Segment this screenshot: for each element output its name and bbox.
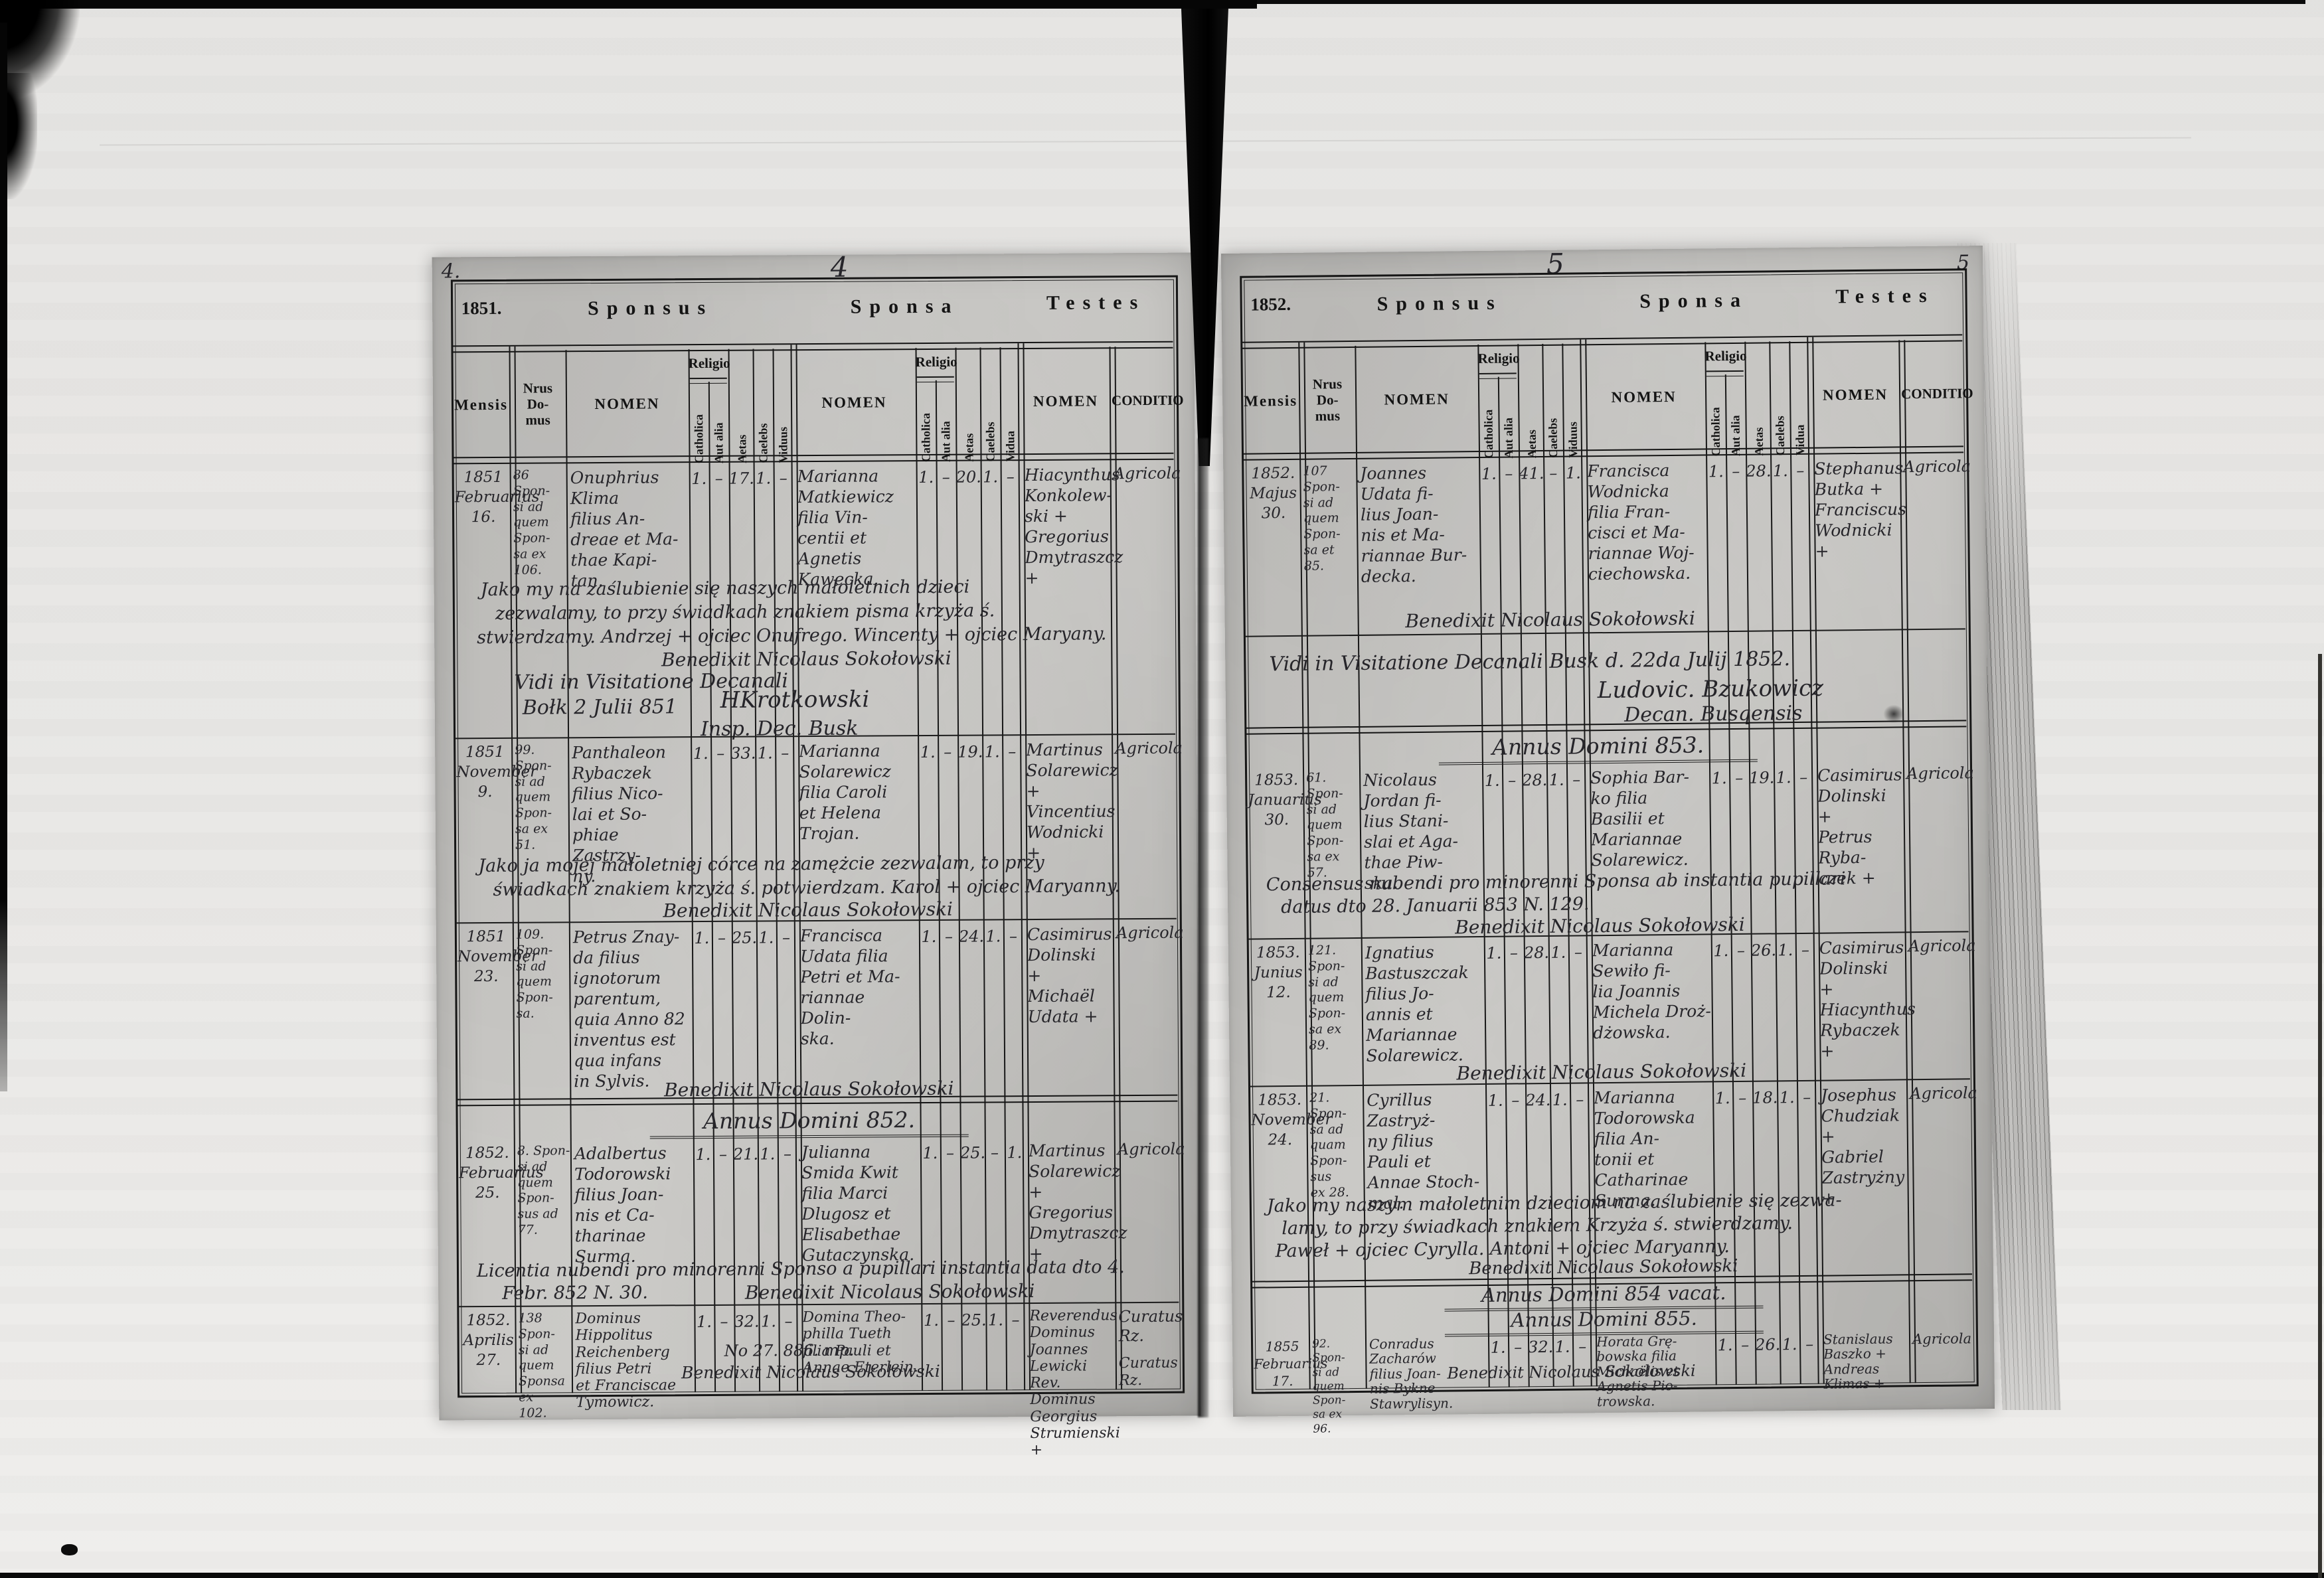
testes-names: Hiacynthus Konkolew- ski + Gregorius Dmy… bbox=[1025, 464, 1113, 588]
col-header-aut-alia-sponsa: Aut alia bbox=[1728, 378, 1743, 456]
sponsa-aetas: 28. bbox=[1746, 461, 1770, 480]
sponsus-aetas: 32. bbox=[734, 1312, 758, 1331]
entry-date: 1851 November 23. bbox=[457, 927, 515, 987]
sponsa-caelebs: 1. bbox=[1776, 941, 1795, 959]
sponsus-viduus: – bbox=[778, 1144, 797, 1163]
col-header-aetas-sponsa: Aetas bbox=[962, 384, 977, 462]
sponsus-aetas: 21. bbox=[733, 1145, 758, 1164]
sponsus-catholica: 1. bbox=[693, 1145, 713, 1164]
testes-names: Casimirus Dolinski + Michaël Udata + bbox=[1027, 923, 1116, 1027]
sponsus-name: Joannes Udata fi- lius Joan- nis et Ma- … bbox=[1360, 462, 1479, 587]
entry-house-number: 8. Spon- si ad quem Spon- sus ad 77. bbox=[517, 1143, 571, 1238]
col-header-vidua: Vidua bbox=[1003, 383, 1018, 461]
entry-house-number: 86 Spon- si ad quem Spon- sa ex 106. bbox=[513, 467, 567, 578]
col-header-mensis: Mensis bbox=[1242, 392, 1299, 410]
scan-left-strip bbox=[0, 23, 7, 1091]
sponsa-aetas: 26. bbox=[1755, 1335, 1780, 1354]
book-gutter-line bbox=[1198, 438, 1208, 1417]
visitation-date: Bołk 2 Julii 851 bbox=[523, 695, 677, 719]
sponsus-caelebs: – bbox=[1543, 464, 1563, 483]
sponsa-catholica: 1. bbox=[1706, 462, 1726, 481]
sponsa-vidua: – bbox=[1797, 1088, 1817, 1107]
sponsa-vidua: – bbox=[1793, 768, 1813, 787]
group-header-sponsus: Sponsus bbox=[511, 296, 790, 321]
registry-number-note: No 27. 886. mp. bbox=[724, 1341, 855, 1360]
conditio-value: Agricola bbox=[1118, 1140, 1179, 1159]
entry-house-number: 99. Spon- si ad quem Spon- sa ex 51. bbox=[515, 742, 568, 853]
col-header-mensis: Mensis bbox=[453, 396, 509, 414]
col-header-religio-sponsa: Religio bbox=[1704, 348, 1744, 364]
sponsa-caelebs: 1. bbox=[981, 467, 1001, 486]
sponsa-aetas: 19. bbox=[957, 742, 982, 761]
sponsus-catholica: 1. bbox=[1479, 465, 1499, 483]
sponsus-catholica: 1. bbox=[1482, 771, 1502, 790]
benedixit-line: Benedixit Nicolaus Sokołowski bbox=[1385, 1361, 1757, 1383]
sponsus-catholica: 1. bbox=[1485, 1091, 1505, 1110]
sponsa-name: Marianna Matkiewicz filia Vin- centii et… bbox=[797, 465, 916, 590]
col-header-religio-sponsus: Religio bbox=[689, 355, 728, 372]
sponsus-caelebs: 1. bbox=[754, 469, 774, 487]
sponsus-viduus: – bbox=[1566, 770, 1586, 789]
year-label: 1851. bbox=[454, 298, 509, 319]
entry-date: 1853. November 24. bbox=[1251, 1091, 1309, 1151]
benedixit-line: Benedixit Nicolaus Sokołowski bbox=[600, 647, 1012, 671]
benedixit-line: Benedixit Nicolaus Sokołowski bbox=[691, 1280, 1089, 1304]
sponsus-aut-alia: – bbox=[714, 1312, 734, 1331]
sponsa-aetas: 26. bbox=[1751, 941, 1776, 959]
sponsus-aut-alia: – bbox=[710, 744, 730, 763]
sponsus-aetas: 28. bbox=[1524, 943, 1548, 962]
testes-names: Martinus Solarewicz + Vincentius Wodnick… bbox=[1026, 739, 1114, 863]
sponsus-catholica: 1. bbox=[691, 744, 710, 763]
sponsa-aut-alia: – bbox=[1731, 941, 1751, 960]
sponsus-aetas: 33. bbox=[730, 744, 755, 763]
testes-names: Martinus Solarewicz + Gregorius Dmytrasz… bbox=[1029, 1140, 1117, 1264]
consent-note-line: datus dto 28. Januarii 853 N. 129. bbox=[1281, 894, 1590, 917]
sponsa-caelebs: 1. bbox=[983, 927, 1003, 945]
entry-house-number: 21. Spon- sa ad quam Spon- sus ex 28. bbox=[1309, 1090, 1364, 1201]
sponsa-vidua: – bbox=[1002, 742, 1022, 761]
scan-edge-blob bbox=[3, 73, 37, 199]
sponsa-vidua: – bbox=[1001, 467, 1021, 486]
sponsa-catholica: 1. bbox=[1711, 941, 1731, 960]
scan-edge-top-bar bbox=[0, 0, 1257, 9]
entry-house-number: 121. Spon- si ad quem Spon- sa ex 89. bbox=[1308, 943, 1363, 1054]
sponsus-aut-alia: – bbox=[713, 1145, 733, 1164]
sponsa-aetas: 18. bbox=[1752, 1088, 1777, 1107]
scan-edge-bottom-line bbox=[0, 1573, 2324, 1578]
entry-date: 1855 Februarius 17. bbox=[1254, 1338, 1311, 1390]
scan-right-line bbox=[2318, 654, 2322, 1578]
col-header-caelebs-sponsa: Caelebs bbox=[1773, 377, 1787, 455]
col-header-aetas-sponsus: Aetas bbox=[1525, 380, 1539, 458]
testes-names: Stephanus Butka + Franciscus Wodnicki + bbox=[1814, 457, 1903, 561]
visitation-signature: HKrotkowski bbox=[720, 686, 870, 714]
col-header-nomen-sponsa: NOMEN bbox=[793, 394, 916, 412]
col-header-conditio: CONDITIO bbox=[1901, 385, 1964, 402]
sponsus-aetas: 41. bbox=[1519, 464, 1543, 483]
entry-house-number: 109. Spon- si ad quem Spon- sa. bbox=[516, 927, 570, 1022]
sponsus-caelebs: 1. bbox=[758, 1144, 778, 1163]
sponsus-name: Ignatius Bastuszczak filius Jo- annis et… bbox=[1365, 941, 1485, 1066]
benedixit-line: Benedixit Nicolaus Sokołowski bbox=[638, 1361, 983, 1382]
sponsus-viduus: – bbox=[778, 1312, 798, 1330]
conditio-value: Agricola bbox=[1910, 1083, 1971, 1103]
sponsa-name: Julianna Smida Kwit filia Marci Dlugosz … bbox=[801, 1141, 920, 1265]
sponsus-viduus: – bbox=[776, 928, 796, 947]
sponsa-vidua: – bbox=[1795, 941, 1815, 959]
sponsus-aut-alia: – bbox=[709, 469, 729, 488]
sponsa-caelebs: 1. bbox=[1770, 461, 1790, 480]
group-header-sponsa: Sponsa bbox=[792, 295, 1017, 319]
conditio-value: Curatus Rz. bbox=[1118, 1307, 1179, 1346]
sponsus-caelebs: 1. bbox=[756, 928, 776, 947]
sponsa-aut-alia: – bbox=[940, 1144, 960, 1162]
group-header-testes: Testes bbox=[1019, 291, 1173, 315]
sponsus-name: Adalbertus Todorowski filius Joan- nis e… bbox=[574, 1143, 693, 1267]
entry-house-number: 61. Spon- si ad quem Spon- sa ex 57. bbox=[1306, 770, 1361, 881]
sponsa-vidua: – bbox=[1005, 1310, 1025, 1329]
sponsa-aut-alia: – bbox=[941, 1311, 961, 1330]
entry-date: 1851 November 9. bbox=[456, 743, 514, 803]
sponsa-caelebs: 1. bbox=[1780, 1335, 1799, 1354]
conditio-value: Agricola bbox=[1906, 763, 1967, 783]
conditio-value: Agricola bbox=[1116, 923, 1177, 943]
sponsus-aetas: 28. bbox=[1522, 771, 1546, 789]
annus-domini-heading: Annus Domini 855. bbox=[1445, 1306, 1764, 1337]
sponsa-aut-alia: – bbox=[1732, 1089, 1752, 1107]
testes-names: Reverendus Dominus Joannes Lewicki Rev. … bbox=[1029, 1307, 1118, 1459]
sponsa-caelebs: – bbox=[985, 1143, 1005, 1162]
col-header-nrus-domus: Nrus Do- mus bbox=[1301, 376, 1355, 424]
col-header-nomen-sponsa: NOMEN bbox=[1582, 388, 1705, 406]
sponsus-aetas: 17. bbox=[729, 469, 754, 488]
sponsa-catholica: 1. bbox=[921, 1311, 941, 1330]
annus-domini-heading: Annus Domini 853. bbox=[1438, 732, 1757, 765]
sponsus-viduus: – bbox=[775, 744, 795, 762]
col-header-nomen-testes: NOMEN bbox=[1020, 392, 1112, 410]
col-header-aut-alia-sponsus: Aut alia bbox=[712, 385, 726, 463]
sponsus-name: Onuphrius Klima filius An- dreae et Ma- … bbox=[570, 467, 689, 591]
register-page-right: 5 5 1852. Sponsus Sponsa Testes Mensis N… bbox=[1221, 246, 1995, 1417]
col-header-caelebs-sponsus: Caelebs bbox=[756, 384, 771, 463]
sponsus-aut-alia: – bbox=[1505, 1091, 1525, 1109]
sponsa-vidua: – bbox=[1799, 1335, 1819, 1354]
sponsus-catholica: 1. bbox=[1484, 944, 1504, 963]
sponsa-catholica: 1. bbox=[920, 1144, 940, 1162]
sponsa-catholica: 1. bbox=[1709, 769, 1729, 787]
visitation-signature: Ludovic. Bzukowicz bbox=[1598, 675, 1824, 704]
sponsa-aetas: 25. bbox=[960, 1143, 985, 1162]
sponsus-aut-alia: – bbox=[1499, 464, 1519, 483]
entry-date: 1851 Februarius 16. bbox=[455, 468, 513, 528]
entry-house-number: 107 Spon- si ad quem Spon- sa et 85. bbox=[1303, 463, 1357, 574]
group-header-sponsus: Sponsus bbox=[1300, 291, 1580, 316]
conditio-value: Agricola bbox=[1903, 457, 1964, 477]
col-header-religio-sponsa: Religio bbox=[916, 354, 955, 370]
sponsa-aetas: 20. bbox=[956, 467, 981, 486]
col-header-aut-alia-sponsus: Aut alia bbox=[1501, 380, 1516, 458]
sponsus-aut-alia: – bbox=[1502, 771, 1522, 789]
sponsa-caelebs: 1. bbox=[982, 742, 1002, 761]
sponsa-aetas: 25. bbox=[961, 1310, 985, 1329]
sponsus-aut-alia: – bbox=[1504, 943, 1524, 962]
col-header-viduus: Viduus bbox=[776, 384, 791, 463]
sponsa-name: Marianna Solarewicz filia Caroli et Hele… bbox=[799, 740, 918, 844]
sponsus-viduus: – bbox=[1570, 1090, 1590, 1109]
sponsa-aut-alia: – bbox=[1729, 769, 1749, 787]
sponsus-viduus: – bbox=[774, 469, 793, 487]
sponsus-aut-alia: – bbox=[1508, 1338, 1528, 1356]
col-header-nomen-testes: NOMEN bbox=[1809, 386, 1901, 404]
sponsus-viduus: – bbox=[1568, 943, 1588, 961]
sponsa-catholica: 1. bbox=[918, 743, 938, 761]
col-header-caelebs-sponsus: Caelebs bbox=[1546, 380, 1560, 458]
conditio-value: Agricola bbox=[1912, 1330, 1973, 1348]
entry-date: 1853. Januarius 30. bbox=[1248, 771, 1305, 831]
col-header-viduus: Viduus bbox=[1566, 379, 1580, 457]
col-header-religio-sponsus: Religio bbox=[1477, 350, 1517, 366]
entry-date: 1852. Majus 30. bbox=[1244, 464, 1302, 524]
sponsus-caelebs: 1. bbox=[1550, 1091, 1570, 1109]
sponsus-aetas: 25. bbox=[732, 929, 756, 947]
consent-note-line: zezwalamy, to przy świadkach znakiem pis… bbox=[495, 600, 995, 624]
group-header-testes: Testes bbox=[1808, 284, 1961, 308]
sponsa-aetas: 24. bbox=[959, 927, 983, 945]
entry-house-number: 92. Spon- si ad quem Spon- sa ex 96. bbox=[1312, 1337, 1367, 1437]
conditio-value: Curatus Rz. bbox=[1119, 1355, 1180, 1390]
conditio-value: Agricola bbox=[1115, 739, 1176, 758]
sponsus-catholica: 1. bbox=[694, 1312, 714, 1331]
col-header-caelebs-sponsa: Caelebs bbox=[983, 383, 998, 461]
col-header-catholica-sponsus: Catholica bbox=[1481, 380, 1496, 459]
conditio-value: Agricola bbox=[1908, 936, 1969, 956]
sponsa-vidua: – bbox=[1003, 927, 1023, 945]
sponsus-caelebs: 1. bbox=[1552, 1338, 1572, 1356]
sponsa-catholica: 1. bbox=[1715, 1336, 1735, 1354]
benedixit-line: Benedixit Nicolaus Sokołowski bbox=[1345, 607, 1756, 633]
consent-note-line: stwierdzamy. Andrzej + ojciec Onufrego. … bbox=[477, 623, 1106, 648]
entry-date: 1852. Februarius 25. bbox=[459, 1144, 517, 1204]
sponsus-catholica: 1. bbox=[692, 929, 712, 947]
annus-domini-heading: Annus Domini 852. bbox=[649, 1107, 968, 1139]
sponsus-aetas: 32. bbox=[1528, 1338, 1552, 1356]
backing-paper-crease bbox=[100, 137, 2191, 146]
testes-names: Casimirus Dolinski + Hiacynthus Rybaczek… bbox=[1819, 937, 1908, 1061]
entry-date: 1852. Aprilis 27. bbox=[459, 1311, 517, 1371]
sponsus-aetas: 24. bbox=[1525, 1091, 1550, 1109]
sponsa-name: Francisca Udata filia Petri et Ma- riann… bbox=[800, 925, 919, 1049]
sponsus-catholica: 1. bbox=[1488, 1338, 1508, 1357]
sponsus-viduus: – bbox=[1572, 1337, 1592, 1356]
sponsus-name: Dominus Hippolitus Reichenberg filius Pe… bbox=[575, 1310, 694, 1411]
col-header-nomen-sponsus: NOMEN bbox=[1355, 390, 1478, 409]
sponsa-vidua: 1. bbox=[1005, 1143, 1025, 1162]
entry-house-number: 138 Spon- si ad quem Sponsa ex 102. bbox=[518, 1310, 572, 1421]
sponsus-name: Petrus Znay- da filius ignotorum parentu… bbox=[573, 926, 693, 1091]
sponsus-caelebs: 1. bbox=[1548, 943, 1568, 962]
sponsa-vidua: – bbox=[1790, 461, 1810, 480]
benedixit-line: Benedixit Nicolaus Sokołowski bbox=[602, 898, 1014, 922]
sponsus-caelebs: 1. bbox=[758, 1312, 778, 1330]
sponsa-catholica: 1. bbox=[1712, 1089, 1732, 1107]
col-header-vidua: Vidua bbox=[1793, 377, 1807, 455]
group-header-sponsa: Sponsa bbox=[1581, 289, 1806, 314]
sponsus-aut-alia: – bbox=[712, 929, 732, 947]
sponsus-catholica: 1. bbox=[689, 469, 709, 488]
col-header-aetas-sponsa: Aetas bbox=[1752, 377, 1766, 455]
consent-note-line: świadkach znakiem krzyża ś. potwierdzam.… bbox=[493, 876, 1120, 900]
col-header-catholica-sponsus: Catholica bbox=[692, 385, 706, 463]
sponsus-viduus: 1. bbox=[1563, 463, 1583, 482]
licentia-note-line: Febr. 852 N. 30. bbox=[502, 1283, 648, 1304]
consent-note-line: Jako my na zaślubienie się naszych małol… bbox=[481, 577, 970, 600]
col-header-nrus-domus: Nrus Do- mus bbox=[511, 380, 564, 428]
sponsa-aut-alia: – bbox=[938, 743, 957, 761]
sponsa-caelebs: 1. bbox=[1777, 1088, 1797, 1107]
testes-names: Stanislaus Baszko + Andreas Klimas + bbox=[1823, 1331, 1912, 1391]
entry-date: 1853. Junius 12. bbox=[1250, 943, 1307, 1004]
col-header-nomen-sponsus: NOMEN bbox=[566, 395, 689, 413]
sponsa-aut-alia: – bbox=[1735, 1336, 1755, 1354]
licentia-note-line: Licentia nubendi pro minorenni Sponso a … bbox=[477, 1257, 1125, 1281]
col-header-catholica-sponsa: Catholica bbox=[919, 384, 934, 462]
sponsa-name: Sophia Bar- ko filia Basilii et Marianna… bbox=[1590, 766, 1710, 870]
sponsa-name: Marianna Sewiło fi- lia Joannis Michela … bbox=[1592, 939, 1712, 1043]
sponsa-aetas: 19. bbox=[1749, 768, 1774, 787]
year-label: 1852. bbox=[1243, 294, 1299, 315]
sponsa-aut-alia: – bbox=[1726, 462, 1746, 481]
col-header-catholica-sponsa: Catholica bbox=[1708, 378, 1723, 456]
scanned-register-spread: { "labels": { "sponsus": "Sponsus", "spo… bbox=[0, 0, 2324, 1578]
col-header-aut-alia-sponsa: Aut alia bbox=[939, 384, 954, 462]
conditio-value: Agricola bbox=[1114, 464, 1175, 483]
sponsa-name: Francisca Wodnicka filia Fran- cisci et … bbox=[1587, 459, 1706, 584]
sponsa-caelebs: 1. bbox=[985, 1310, 1005, 1329]
register-page-left: 4. 4 1851. Sponsus Sponsa Testes Mensis … bbox=[432, 253, 1201, 1421]
sponsa-aut-alia: – bbox=[936, 468, 956, 487]
sponsa-catholica: 1. bbox=[916, 468, 936, 487]
col-header-conditio: CONDITIO bbox=[1112, 392, 1175, 409]
sponsus-caelebs: 1. bbox=[755, 744, 775, 762]
sponsa-catholica: 1. bbox=[919, 927, 939, 946]
sponsa-caelebs: 1. bbox=[1774, 768, 1793, 787]
col-header-aetas-sponsus: Aetas bbox=[735, 385, 750, 463]
scan-bottom-mark bbox=[61, 1544, 78, 1555]
sponsus-caelebs: 1. bbox=[1546, 771, 1566, 789]
consent-note-line: Jako ja mojej małoletniej córce na zamęż… bbox=[478, 852, 1044, 876]
sponsa-aut-alia: – bbox=[939, 927, 959, 946]
